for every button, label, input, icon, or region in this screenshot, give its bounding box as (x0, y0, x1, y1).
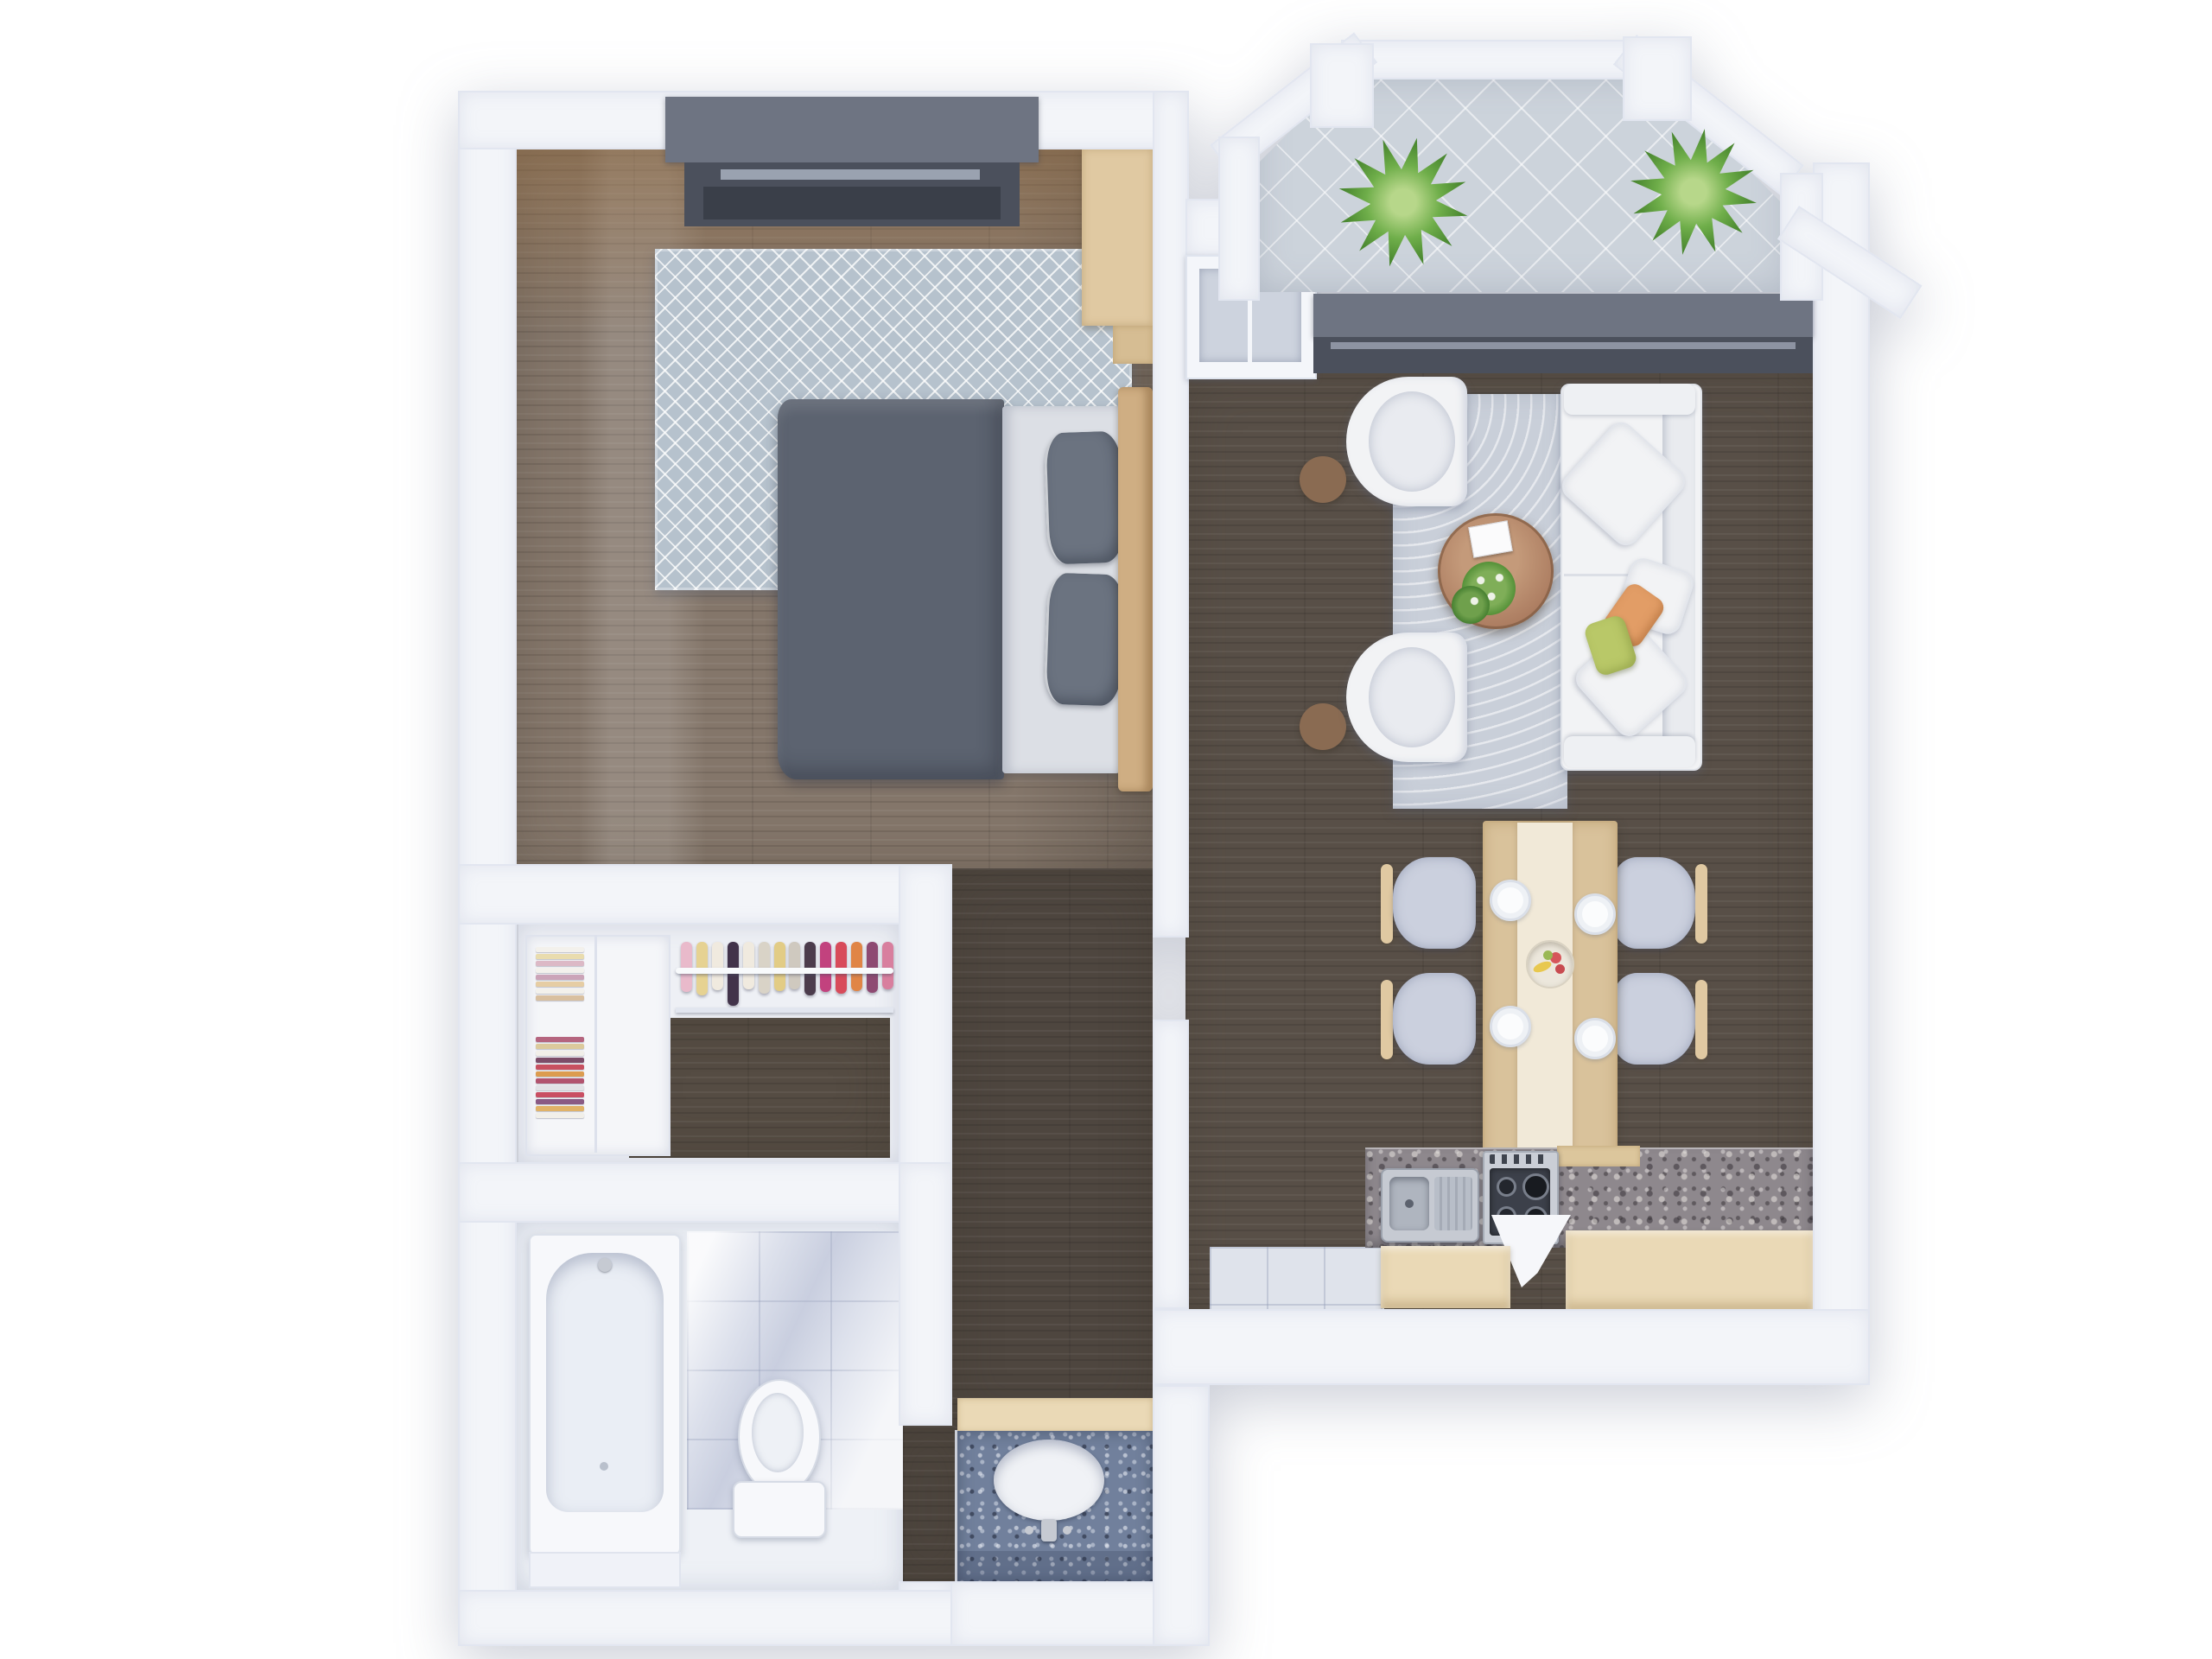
chair-backrest (1381, 864, 1393, 944)
hanging-garment (681, 942, 692, 992)
wall-closet-top (458, 864, 952, 925)
door-band-top (1313, 294, 1813, 337)
chair-cushion (1612, 973, 1695, 1065)
plate (1490, 880, 1531, 921)
burner (1497, 1177, 1516, 1197)
armchair (1346, 632, 1467, 762)
folded-garment (536, 1078, 584, 1084)
faucet-handle (1063, 1526, 1071, 1535)
toilet-seat (752, 1393, 804, 1472)
chair-cushion (1393, 973, 1476, 1065)
hanging-garment (851, 942, 862, 991)
dining-chair (1381, 857, 1478, 950)
door-band-glass-line (1331, 342, 1796, 349)
plate (1574, 1018, 1616, 1059)
folded-garment (536, 1071, 584, 1077)
folded-garment (536, 1099, 584, 1104)
balcony-railing-top (1341, 40, 1656, 79)
stove-control-panel (1490, 1154, 1550, 1164)
bed-headboard (1118, 387, 1153, 791)
coffee-table (1438, 513, 1554, 629)
dining-chair (1612, 857, 1709, 950)
folded-garment (536, 1106, 584, 1111)
wall-bedroom-right-lower (1153, 1020, 1189, 1309)
kitchen-wood-trim (1557, 1146, 1640, 1166)
vanity-sink (994, 1440, 1104, 1521)
sofa-armrest (1564, 736, 1695, 767)
toilet (733, 1379, 823, 1535)
bedroom-desk (1082, 149, 1153, 326)
bathtub (529, 1234, 681, 1555)
closet-shelf-edge (676, 1007, 893, 1013)
balcony-pillar (1310, 43, 1374, 128)
folded-garment (536, 1085, 584, 1090)
hanging-garment (882, 942, 893, 989)
bedroom-window (665, 97, 1039, 226)
armchair-seat (1369, 391, 1455, 492)
folded-garment (536, 982, 584, 987)
apple-green (1543, 950, 1553, 960)
folded-garment (536, 947, 584, 952)
hallway-floor (950, 868, 1153, 1430)
hanging-garment (728, 942, 739, 1006)
balcony-door-band (1313, 294, 1813, 373)
plate (1574, 893, 1616, 935)
chair-backrest (1695, 980, 1707, 1059)
hanging-garment (743, 942, 754, 989)
kitchen-cabinet (1381, 1246, 1510, 1308)
plate (1490, 1006, 1531, 1047)
folded-garment (536, 968, 584, 973)
balcony-pillar (1623, 36, 1692, 121)
chair-backrest (1695, 864, 1707, 944)
folded-garment (536, 1058, 584, 1063)
side-table (1300, 703, 1346, 750)
hanging-garment (712, 942, 723, 990)
kitchen-cabinet (1566, 1230, 1813, 1310)
folded-garment (536, 1044, 584, 1049)
closet-hanging-rail (676, 968, 893, 974)
bathtub-drain (600, 1462, 608, 1471)
bathtub-step (529, 1552, 681, 1588)
wall-main-bottom (1153, 1309, 1870, 1385)
wall-vanity-right (1153, 1385, 1210, 1646)
folded-garment (536, 961, 584, 966)
side-table (1300, 456, 1346, 503)
sofa-armrest (1564, 384, 1695, 415)
closet-shelf-divider (594, 935, 597, 1153)
bathtub-basin (546, 1253, 664, 1512)
apple-red (1555, 964, 1565, 974)
vanity-shadow (957, 1551, 1153, 1583)
folded-garment (536, 975, 584, 980)
bed-pillow (1043, 572, 1124, 706)
folded-garment (536, 1092, 584, 1097)
hanging-garment (820, 942, 831, 992)
armchair (1346, 377, 1467, 506)
chair-cushion (1612, 857, 1695, 949)
sink-drain (1405, 1199, 1414, 1208)
folded-garment (536, 988, 584, 994)
kitchen-sink (1381, 1168, 1479, 1243)
wall-bathroom-right (899, 1162, 952, 1426)
folded-garment (536, 1113, 584, 1118)
bathroom-door-threshold (903, 1426, 955, 1581)
faucet-handle (1025, 1526, 1033, 1535)
floor-plan (0, 0, 2212, 1659)
bathtub-faucet (598, 1258, 612, 1272)
balcony-railing-left (1218, 137, 1260, 301)
magazine (1468, 520, 1513, 557)
sofa (1560, 384, 1699, 767)
window-frame-outer (665, 97, 1039, 162)
banana (1532, 959, 1553, 975)
wall-exterior-right (1813, 162, 1870, 1385)
table-flowers (1452, 586, 1490, 624)
folded-garment (536, 1051, 584, 1056)
entry-tile-floor (1210, 1247, 1384, 1309)
chair-cushion (1393, 857, 1476, 949)
wall-bedroom-right (1153, 91, 1189, 938)
bed-pillow (1043, 430, 1124, 564)
table-runner (1517, 823, 1573, 1163)
window-sill (703, 187, 1001, 219)
sink-drainboard (1434, 1177, 1472, 1230)
fruit-bowl (1526, 940, 1574, 988)
hanging-clothes-row (681, 942, 893, 1006)
folded-clothes-stack (536, 1037, 584, 1118)
burner (1522, 1173, 1549, 1200)
dining-table (1483, 821, 1618, 1168)
folded-garment (536, 954, 584, 959)
wall-bathroom-top (458, 1162, 952, 1223)
vanity-cabinet (957, 1398, 1153, 1433)
bedroom-desk-return (1113, 326, 1153, 364)
folded-garment (536, 995, 584, 1001)
toilet-tank (733, 1481, 826, 1538)
window-glass-slit (721, 169, 980, 180)
dining-chair (1612, 973, 1709, 1066)
bed-duvet (778, 399, 1004, 779)
dining-chair (1381, 973, 1478, 1066)
armchair-seat (1369, 647, 1455, 747)
folded-clothes-stack (536, 947, 584, 1001)
folded-garment (536, 1065, 584, 1070)
vanity-faucet (1041, 1519, 1057, 1541)
folded-garment (536, 1037, 584, 1042)
wall-bathroom-bottom (458, 1590, 1011, 1646)
chair-backrest (1381, 980, 1393, 1059)
hanging-garment (774, 942, 785, 991)
hanging-garment (789, 942, 800, 989)
